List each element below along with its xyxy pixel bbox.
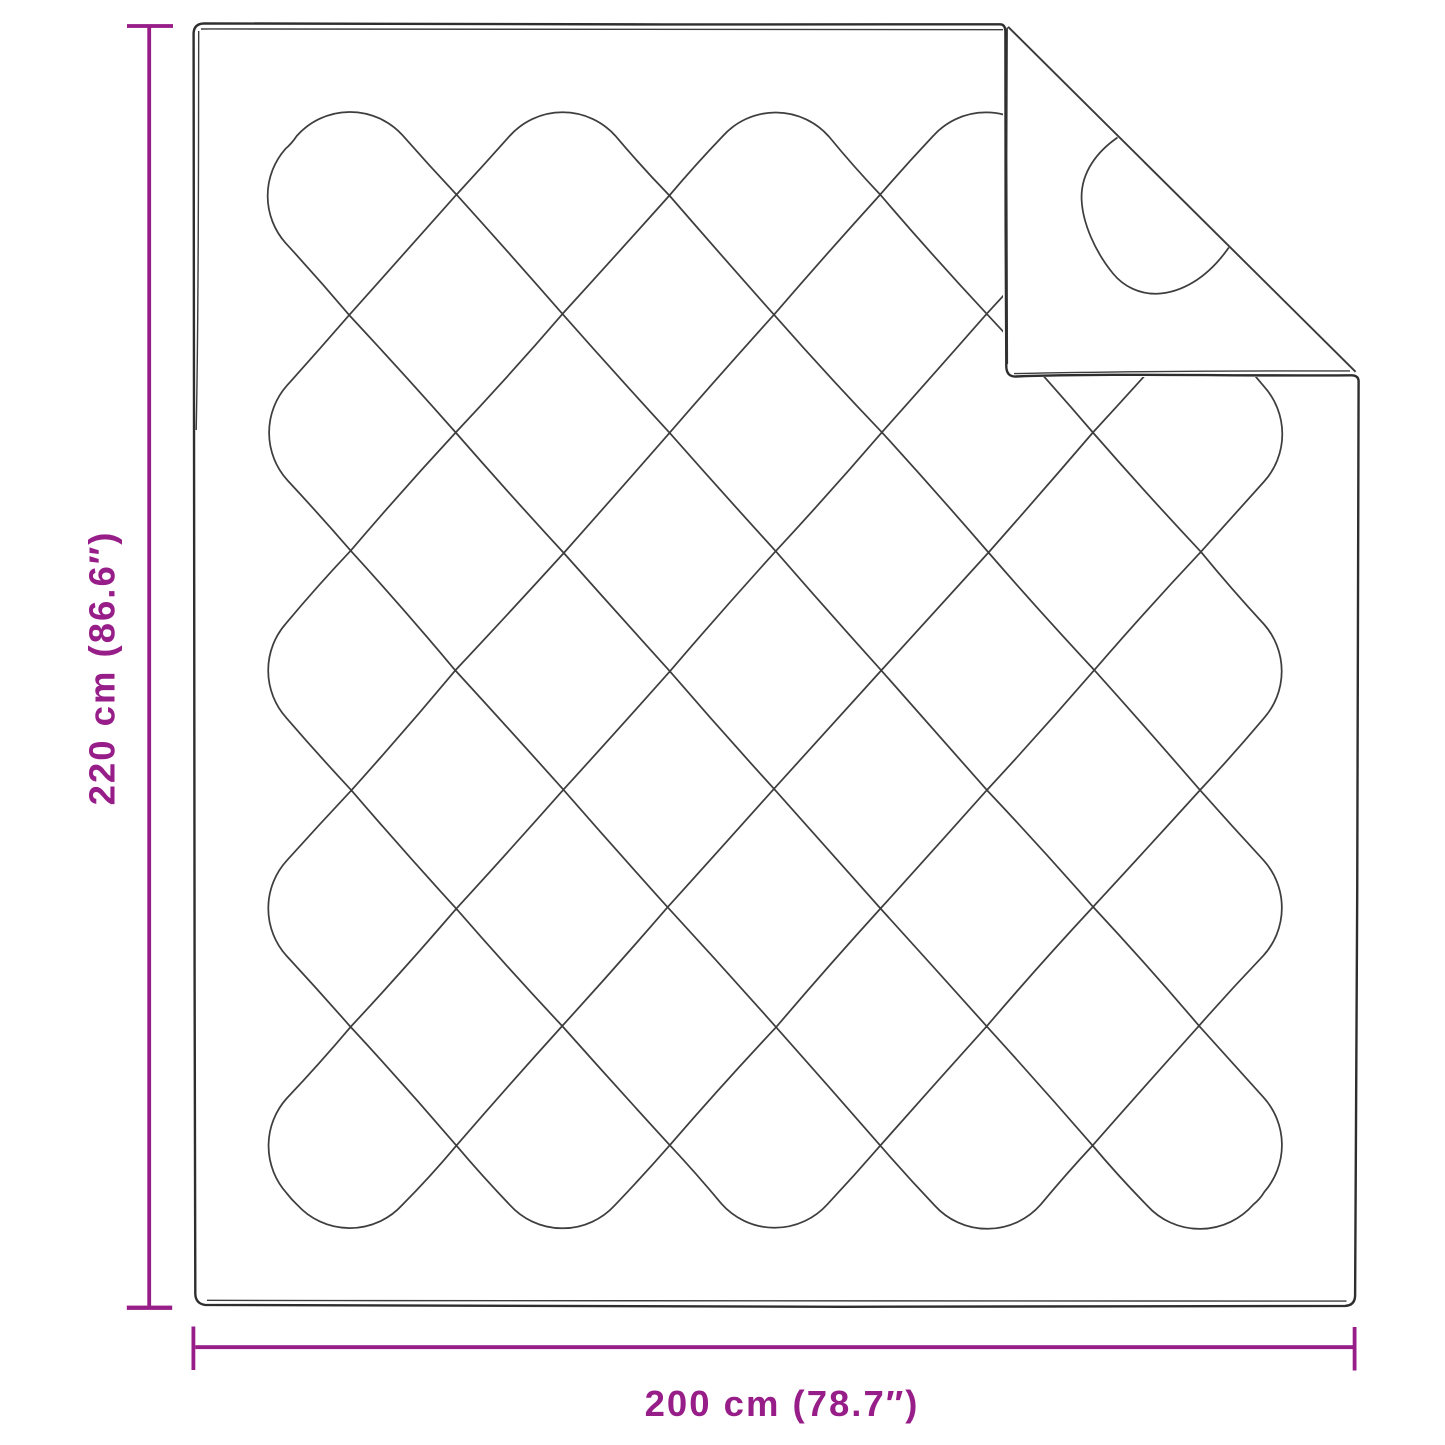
svg-text:200 cm (78.7″): 200 cm (78.7″) bbox=[645, 1383, 920, 1424]
svg-text:220 cm (86.6″): 220 cm (86.6″) bbox=[82, 531, 123, 806]
